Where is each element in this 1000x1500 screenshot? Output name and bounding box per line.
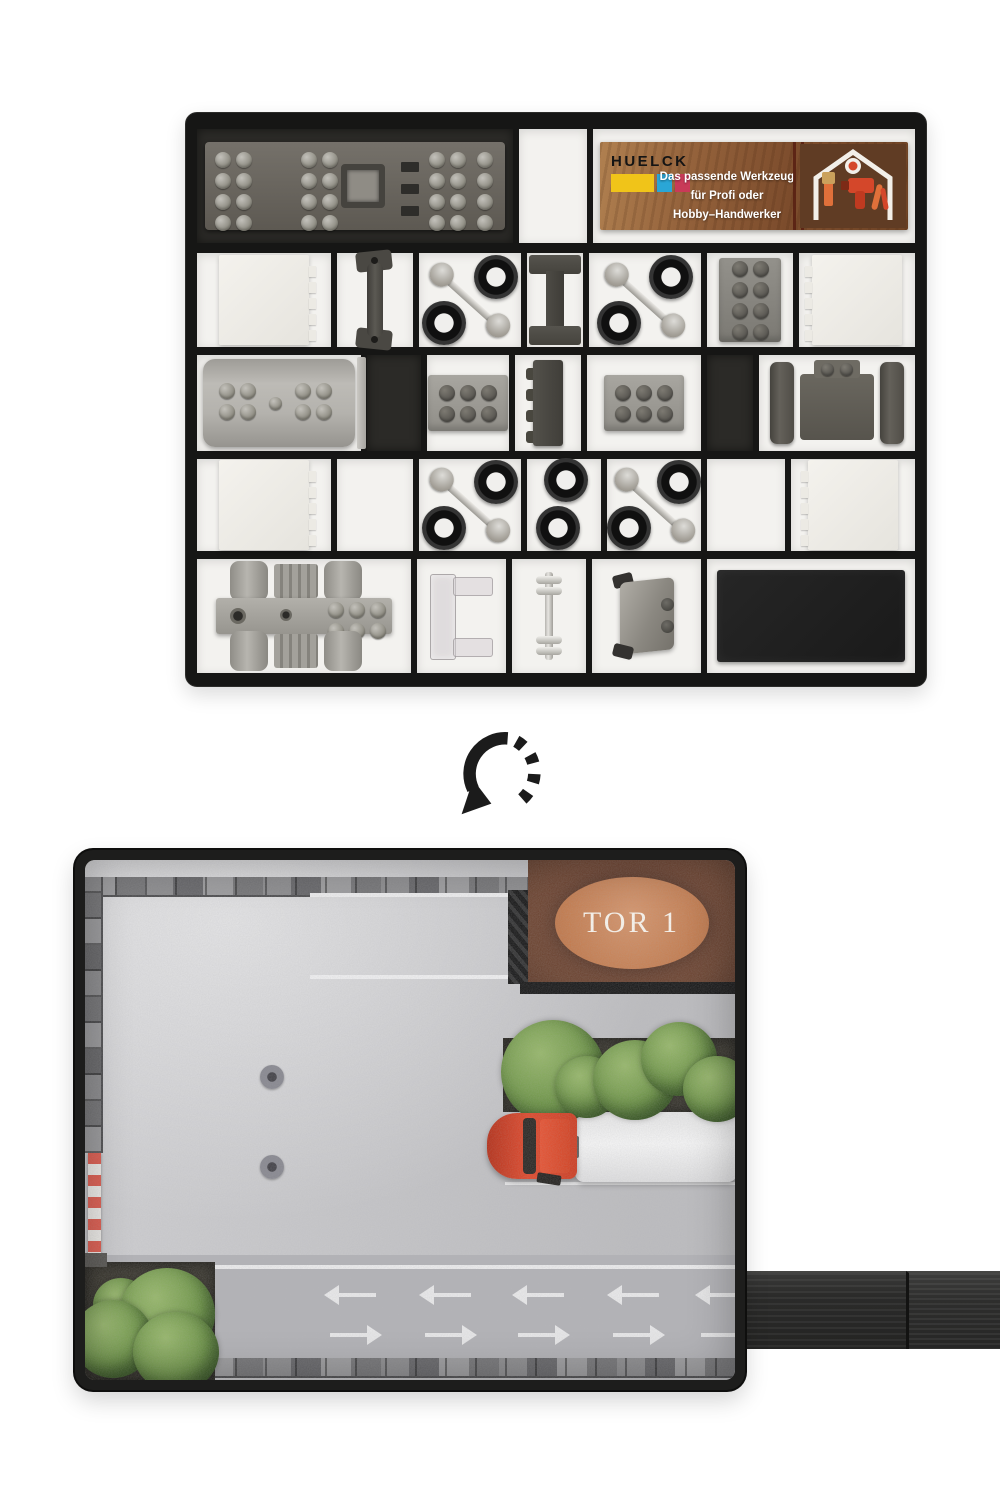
wheel-axle-set-part (607, 460, 701, 550)
stud-group (295, 383, 332, 420)
tray-cell (707, 253, 793, 347)
dock-lane-line (310, 975, 517, 979)
cab-roof-part (203, 359, 355, 447)
connector-hole (260, 1155, 284, 1179)
parts-tray: HUELCK Das passende Werkzeug für Profi o… (185, 112, 927, 687)
tray-cell-filler (707, 355, 753, 451)
slot (401, 184, 419, 194)
dark-brick-1x4-part (533, 360, 563, 446)
brand-card: HUELCK Das passende Werkzeug für Profi o… (600, 142, 908, 230)
stud (322, 152, 338, 168)
stud (301, 173, 317, 189)
stud (429, 194, 445, 210)
stud (429, 173, 445, 189)
stud (615, 406, 631, 422)
panel-tabs (801, 471, 808, 546)
window-frame-part (529, 255, 581, 345)
stud (439, 406, 455, 422)
tray-cell (417, 559, 506, 673)
tray-cell-empty (337, 459, 413, 551)
tray-cell (515, 355, 581, 451)
tray-cell (592, 559, 701, 673)
tire (536, 506, 580, 550)
stud (322, 173, 338, 189)
stud (316, 404, 332, 420)
black-bed-panel-part (717, 570, 905, 662)
tagline-line-2: für Profi oder (658, 187, 796, 206)
tray-cell (607, 459, 701, 551)
lane-arrow-right (518, 1333, 564, 1337)
tray-cell (759, 355, 915, 451)
stud (322, 215, 338, 231)
stud (450, 215, 466, 231)
stud (481, 385, 497, 401)
brick-border-left (85, 877, 103, 1153)
tray-cell (197, 253, 331, 347)
tray-cell (197, 559, 411, 673)
tray-cell-filler (367, 355, 421, 451)
play-mat: TOR 1 (75, 850, 745, 1390)
gray-brick-2x4-part (719, 258, 781, 342)
axle-rod-part (534, 572, 564, 660)
fuel-tank (324, 631, 362, 671)
stud (240, 383, 256, 399)
gray-brick-2x3-part (604, 375, 684, 431)
rail-segment (737, 1271, 906, 1349)
panel-tabs (805, 266, 812, 341)
stud (477, 215, 493, 231)
stud (732, 303, 748, 319)
truck-trailer (575, 1112, 735, 1182)
wheel-axle-set-part (422, 460, 518, 550)
stud (636, 406, 652, 422)
tray-cell (799, 253, 915, 347)
tray-cell (527, 253, 583, 347)
stud (477, 173, 493, 189)
stud (450, 152, 466, 168)
pin-hole (230, 608, 246, 624)
stud (460, 406, 476, 422)
stud (657, 385, 673, 401)
stud (477, 152, 493, 168)
connector-hole (260, 1065, 284, 1089)
lane-arrow-right (613, 1333, 659, 1337)
stud (753, 282, 769, 298)
stud (732, 261, 748, 277)
stud (450, 194, 466, 210)
slot (401, 206, 419, 216)
stud-group (215, 152, 252, 231)
stud (219, 404, 235, 420)
stud (215, 215, 231, 231)
white-panel-part (219, 460, 309, 550)
card-tagline: Das passende Werkzeug für Profi oder Hob… (658, 168, 796, 225)
gray-brick-2x3-part (428, 375, 508, 431)
stud (316, 383, 332, 399)
stud (349, 602, 365, 618)
tagline-line-1: Das passende Werkzeug (658, 168, 796, 187)
tray-cell (419, 253, 521, 347)
stud (615, 385, 631, 401)
stud (460, 385, 476, 401)
stud (236, 152, 252, 168)
stud (840, 363, 853, 376)
stud (236, 173, 252, 189)
stud-group (439, 385, 497, 422)
tank-chassis-part (216, 561, 392, 671)
lane-arrow-right (425, 1333, 471, 1337)
stud (215, 173, 231, 189)
stud (301, 215, 317, 231)
white-panel-part (219, 255, 309, 345)
road-extension-rail (737, 1271, 1000, 1349)
tray-cell (197, 129, 513, 243)
tray-cell (197, 355, 361, 451)
rail-segment (906, 1271, 1000, 1349)
dock-lane-line (310, 893, 517, 897)
tools-illustration (800, 144, 906, 228)
stud (439, 385, 455, 401)
engine-grille-part (764, 358, 910, 448)
stud (236, 194, 252, 210)
gate-sign-base (520, 982, 735, 994)
tray-cell (427, 355, 509, 451)
fuel-tank (230, 631, 268, 671)
stud (657, 406, 673, 422)
gate-sign-oval: TOR 1 (555, 877, 709, 969)
hitch-plate-part (605, 572, 689, 660)
lane-arrow-left (425, 1293, 471, 1297)
clear-windshield-part (426, 574, 498, 658)
stud (753, 303, 769, 319)
pole-base (85, 1253, 107, 1267)
tire (544, 458, 588, 502)
stud (450, 173, 466, 189)
road-solid-line (215, 1265, 735, 1269)
rotate-arrow-icon (452, 724, 548, 820)
engine-block (800, 374, 874, 440)
stud (370, 623, 386, 639)
chassis-plate-part (205, 142, 505, 230)
stud (429, 215, 445, 231)
gate-sign: TOR 1 (528, 860, 735, 985)
stud (481, 406, 497, 422)
lane-arrow-left (330, 1293, 376, 1297)
gate-sign-label: TOR 1 (583, 906, 680, 940)
tray-cell-empty (707, 459, 785, 551)
stud (732, 324, 748, 340)
stud (215, 152, 231, 168)
wheel-axle-set-part (597, 255, 693, 345)
stud-group (269, 397, 282, 410)
fuel-tank (324, 561, 362, 601)
stud-group (301, 152, 338, 231)
lane-arrow-left (613, 1293, 659, 1297)
tray-cell (419, 459, 521, 551)
stud-group (429, 152, 466, 231)
tray-cell (197, 459, 331, 551)
lane-arrow-right (701, 1333, 735, 1337)
stud (240, 404, 256, 420)
cylinder (880, 362, 904, 444)
stud (295, 404, 311, 420)
stud (322, 194, 338, 210)
tray-cell (589, 253, 701, 347)
tray-cell (512, 559, 586, 673)
stud-group (477, 152, 493, 231)
tagline-line-3: Hobby–Handwerker (658, 206, 796, 225)
mat-surface: TOR 1 (85, 860, 735, 1380)
cylinder (770, 362, 794, 444)
lane-arrow-left (518, 1293, 564, 1297)
tray-cell (707, 559, 915, 673)
tray-cell (337, 253, 413, 347)
yellow-square (611, 174, 654, 192)
pin-hole (280, 609, 292, 621)
stud (215, 194, 231, 210)
center-clamp (341, 164, 385, 208)
stud (219, 383, 235, 399)
stud (732, 282, 748, 298)
stud (328, 602, 344, 618)
slot (401, 162, 419, 172)
stud (821, 363, 834, 376)
stud (753, 261, 769, 277)
white-panel-part (812, 255, 902, 345)
white-panel-part (808, 460, 898, 550)
stud-group (219, 383, 256, 420)
stud (636, 385, 652, 401)
stud (301, 194, 317, 210)
wheel-axle-set-part (422, 255, 518, 345)
tray-cell (527, 459, 601, 551)
ribbed-block (274, 564, 318, 598)
stud (429, 152, 445, 168)
tray-cell (587, 355, 701, 451)
lane-arrow-right (330, 1333, 376, 1337)
tray-cell (791, 459, 915, 551)
stud-group (814, 360, 860, 378)
truck-cab (487, 1113, 577, 1179)
panel-tabs (309, 266, 316, 341)
stud (370, 602, 386, 618)
product-photo-page: HUELCK Das passende Werkzeug für Profi o… (0, 0, 1000, 1500)
stud-group (615, 385, 673, 422)
striped-barrier-pole (88, 1153, 101, 1255)
bolt (661, 598, 674, 611)
stud (753, 324, 769, 340)
lane-arrow-left (701, 1293, 735, 1297)
stud (295, 383, 311, 399)
panel-tabs (309, 471, 316, 546)
ribbed-block (274, 634, 318, 668)
tire-pair-part (534, 458, 594, 552)
stud-group (732, 261, 769, 340)
bolt (661, 620, 674, 633)
tray-cell-empty (519, 129, 587, 243)
stud (477, 194, 493, 210)
bumper-handle-part (353, 251, 397, 349)
stud (236, 215, 252, 231)
stud (269, 397, 282, 410)
tray-cell: HUELCK Das passende Werkzeug für Profi o… (593, 129, 915, 243)
fuel-tank (230, 561, 268, 601)
stud (301, 152, 317, 168)
windshield-frame (357, 357, 366, 449)
